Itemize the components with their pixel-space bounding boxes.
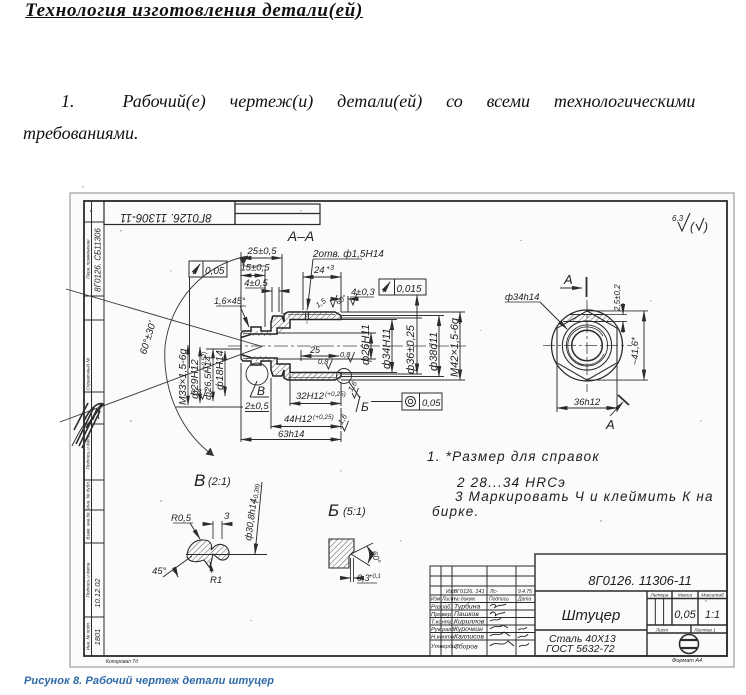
svg-text:0,05: 0,05 [205, 266, 225, 277]
svg-text:2 28...34 HRCэ: 2 28...34 HRCэ [456, 475, 566, 490]
svg-text:Дата: Дата [517, 597, 531, 603]
svg-text:(+0,25): (+0,25) [313, 414, 334, 421]
svg-text:Лист: Лист [441, 597, 455, 603]
svg-text:0,3: 0,3 [357, 573, 370, 583]
svg-text:8Г0126. СБ11306: 8Г0126. СБ11306 [94, 228, 103, 292]
svg-text:44Н12: 44Н12 [284, 414, 313, 425]
svg-text:М42×1,5-6g: М42×1,5-6g [449, 317, 461, 377]
svg-text:Сборов: Сборов [454, 643, 478, 651]
svg-text:ф38d11: ф38d11 [428, 332, 440, 371]
svg-text:45°: 45° [152, 566, 167, 577]
svg-text:Справочный №: Справочный № [85, 358, 91, 391]
svg-text:8Г0126. 11306-11: 8Г0126. 11306-11 [120, 211, 212, 223]
svg-text:Подпись: Подпись [489, 597, 509, 603]
svg-text:(+0,52): (+0,52) [202, 352, 208, 371]
svg-text:Лс-: Лс- [489, 589, 498, 595]
svg-text:0,015: 0,015 [397, 284, 422, 295]
svg-text:Разраб.: Разраб. [431, 604, 452, 610]
svg-text:0,05: 0,05 [422, 398, 441, 409]
svg-text:R0,5: R0,5 [171, 513, 192, 524]
svg-text:2,5±0,2: 2,5±0,2 [613, 284, 622, 312]
svg-text:(2:1): (2:1) [208, 476, 231, 488]
svg-text:Литера: Литера [650, 593, 669, 599]
svg-text:Масштаб: Масштаб [701, 593, 724, 599]
svg-text:6,3: 6,3 [672, 214, 684, 223]
svg-text:Подпись и дата: Подпись и дата [86, 562, 91, 597]
svg-text:Листов 1: Листов 1 [693, 628, 716, 634]
svg-text:36h12: 36h12 [574, 397, 601, 408]
svg-text:+3: +3 [326, 265, 334, 272]
svg-text:В: В [257, 384, 265, 398]
svg-text:1801: 1801 [93, 629, 102, 646]
svg-text:0,8: 0,8 [340, 350, 351, 359]
svg-text:Изм.: Изм. [431, 597, 442, 603]
svg-text:В: В [194, 471, 205, 490]
svg-text:Провер.: Провер. [431, 612, 453, 618]
svg-text:ф34Н11: ф34Н11 [381, 328, 393, 369]
svg-text:А: А [563, 272, 573, 287]
svg-text:Б: Б [328, 501, 339, 520]
svg-text:Б: Б [361, 400, 369, 414]
svg-text:Т.контр.: Т.контр. [431, 619, 454, 625]
svg-text:№ докум.: № докум. [454, 597, 476, 603]
svg-text:Инв. № дубл.: Инв. № дубл. [86, 481, 91, 509]
svg-text:бирке.: бирке. [432, 504, 479, 519]
svg-text:Каллисов: Каллисов [454, 634, 484, 641]
svg-text:Копировал Тд: Копировал Тд [106, 659, 138, 665]
svg-text:А–А: А–А [287, 228, 314, 244]
svg-text:ГОСТ 5632-72: ГОСТ 5632-72 [546, 643, 615, 655]
svg-text:Перв. применение: Перв. применение [86, 239, 91, 279]
svg-text:25±0,5: 25±0,5 [247, 246, 278, 257]
svg-text:~41,6*: ~41,6* [630, 337, 641, 365]
svg-text:М33×1,5-6g: М33×1,5-6g [177, 349, 189, 405]
svg-text:Штуцер: Штуцер [562, 607, 621, 624]
svg-text:1:1: 1:1 [705, 609, 720, 621]
svg-text:Взам. инв.№: Взам. инв.№ [86, 512, 91, 539]
svg-text:(5:1): (5:1) [343, 506, 366, 518]
svg-text:8Г0126. 11306-11: 8Г0126. 11306-11 [588, 573, 691, 588]
svg-text:0,8: 0,8 [318, 357, 329, 366]
svg-text:2отв. ф1,5Н14: 2отв. ф1,5Н14 [312, 248, 384, 260]
svg-text:1,6×45°: 1,6×45° [214, 296, 246, 306]
svg-text:Курочкин: Курочкин [454, 626, 483, 633]
svg-text:32Н12: 32Н12 [296, 391, 325, 402]
svg-text:Лист: Лист [655, 628, 668, 634]
svg-text:0,05: 0,05 [674, 609, 696, 621]
svg-text:+0,1: +0,1 [369, 574, 381, 580]
svg-text:4±0,5: 4±0,5 [244, 278, 268, 289]
svg-text:3 Маркировать Ч и клеймить К: 3 Маркировать Ч и клеймить К на [455, 489, 714, 504]
svg-text:2±0,5: 2±0,5 [244, 401, 269, 412]
svg-text:63h14: 63h14 [278, 429, 304, 440]
svg-text:3: 3 [224, 511, 230, 522]
svg-text:ф18Н14: ф18Н14 [214, 350, 226, 390]
svg-text:Масса: Масса [678, 593, 693, 599]
svg-text:А: А [605, 417, 615, 432]
svg-text:Инв. № подл.: Инв. № подл. [86, 622, 91, 651]
svg-text:10.12.02: 10.12.02 [93, 578, 102, 608]
svg-text:ф36±0,25: ф36±0,25 [405, 324, 417, 374]
svg-text:ф34h14: ф34h14 [505, 292, 539, 303]
svg-text:R1: R1 [210, 575, 222, 586]
svg-text:Рук.разд.: Рук.разд. [431, 627, 456, 633]
svg-text:24: 24 [313, 265, 325, 276]
svg-text:Кириллов: Кириллов [454, 619, 485, 626]
svg-text:9.4.75: 9.4.75 [518, 589, 532, 595]
svg-text:4±0,3: 4±0,3 [351, 287, 375, 298]
svg-text:Турбина: Турбина [454, 603, 480, 611]
svg-text:25: 25 [309, 345, 321, 355]
svg-text:ф26Н11: ф26Н11 [360, 324, 372, 365]
svg-text:1. *Размер для справок: 1. *Размер для справок [427, 449, 600, 464]
svg-text:8Г0126. 141: 8Г0126. 141 [454, 589, 485, 595]
svg-text:Н.конто.: Н.конто. [431, 634, 456, 640]
svg-text:(+0,25): (+0,25) [325, 391, 346, 398]
svg-text:Пашков: Пашков [454, 611, 479, 618]
svg-text:Формат А4: Формат А4 [672, 658, 702, 664]
svg-text:15±0,5: 15±0,5 [241, 263, 271, 274]
